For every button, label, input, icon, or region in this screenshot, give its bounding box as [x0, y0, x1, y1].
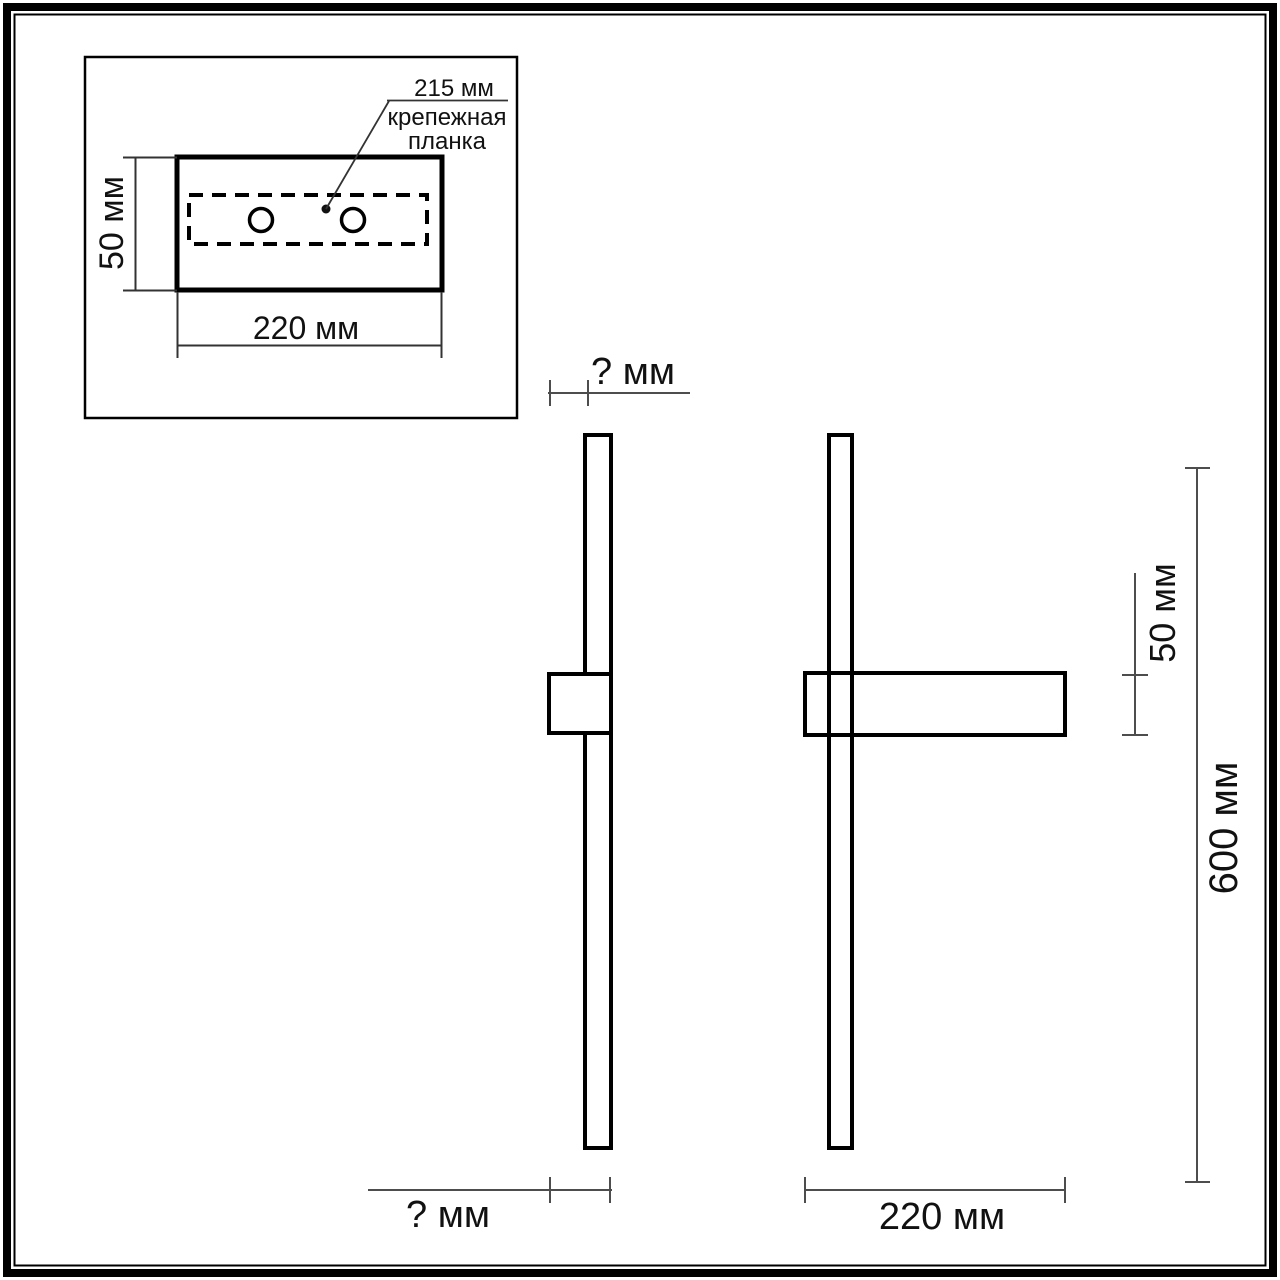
plate-name-line1: крепежная — [388, 104, 507, 131]
inset-width-dim-label: 220 мм — [253, 310, 359, 346]
lamp-dimension-drawing: 215 мм крепежная планка 50 мм 220 мм — [0, 0, 1280, 1280]
lamp-height-dim-label: 600 мм — [1202, 762, 1246, 895]
mounting-hole-left — [250, 209, 273, 232]
inset-height-dim-label: 50 мм — [93, 176, 131, 270]
lamp-tube-side-view — [585, 435, 611, 1148]
plate-name-line2: планка — [408, 128, 487, 155]
mounting-block-side-view — [549, 674, 611, 733]
plate-dim-label: 215 мм — [414, 75, 494, 102]
side-depth-bottom-label: ? мм — [406, 1194, 490, 1236]
side-depth-top-label: ? мм — [591, 351, 675, 393]
bracket-width-dim-label: 220 мм — [879, 1196, 1005, 1238]
bracket-height-dim-label: 50 мм — [1142, 563, 1183, 663]
inset-panel: 215 мм крепежная планка 50 мм 220 мм — [85, 57, 517, 418]
lamp-base-top-view — [177, 157, 442, 290]
mounting-hole-right — [342, 209, 365, 232]
technical-drawing-page: 215 мм крепежная планка 50 мм 220 мм — [0, 0, 1280, 1280]
